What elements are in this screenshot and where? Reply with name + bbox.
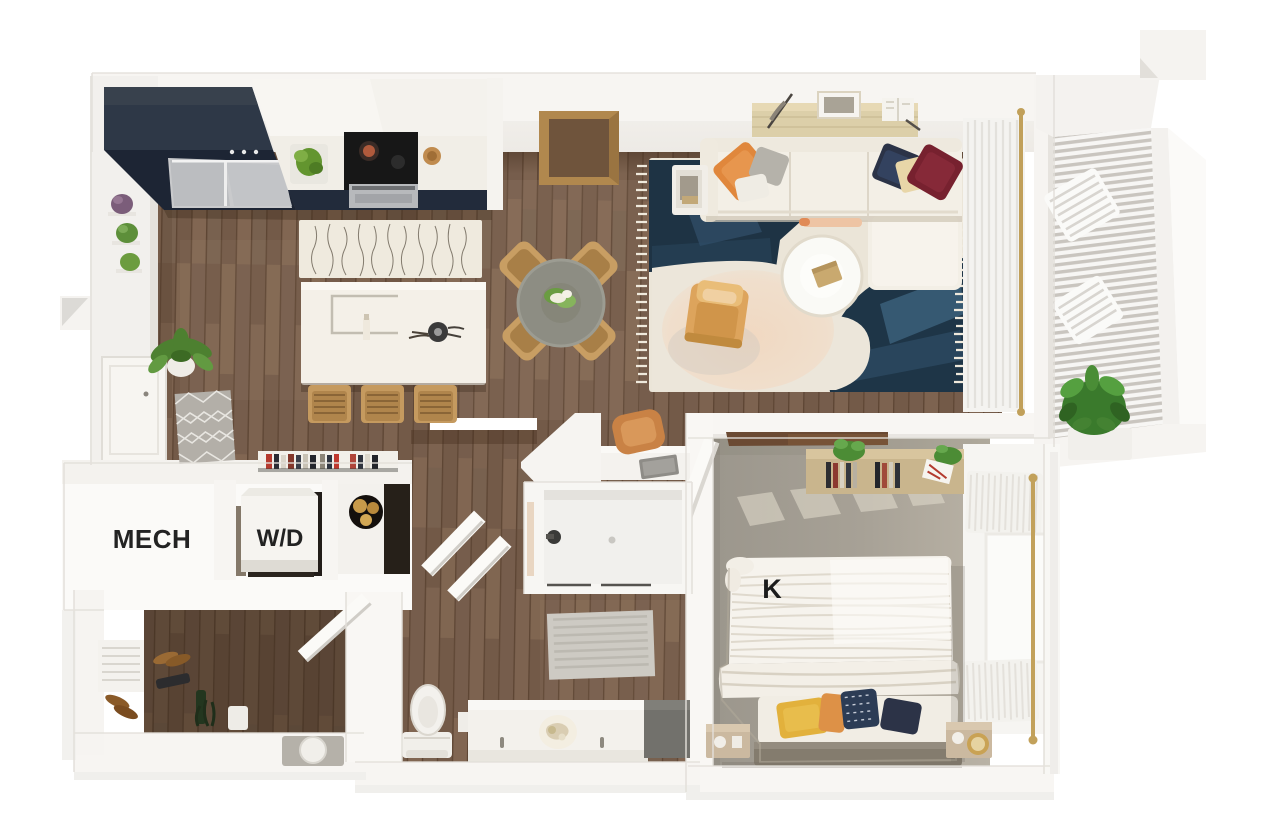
svg-text:MECH: MECH: [113, 524, 192, 554]
svg-text:K: K: [762, 574, 782, 604]
svg-text:W/D: W/D: [257, 525, 304, 552]
